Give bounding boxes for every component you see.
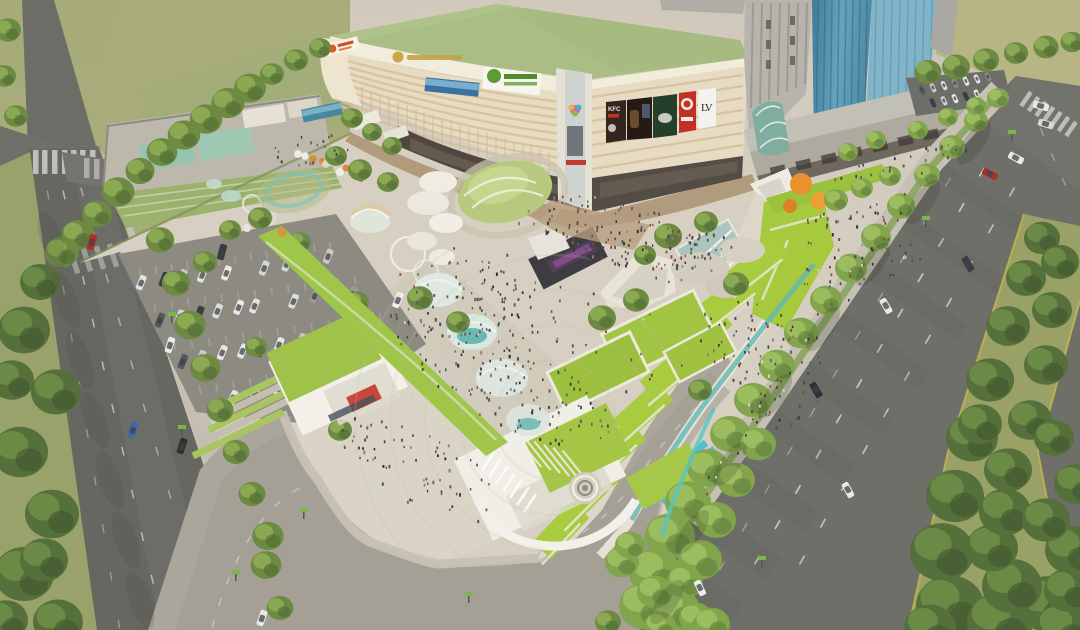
svg-text:KFC: KFC: [608, 107, 621, 113]
